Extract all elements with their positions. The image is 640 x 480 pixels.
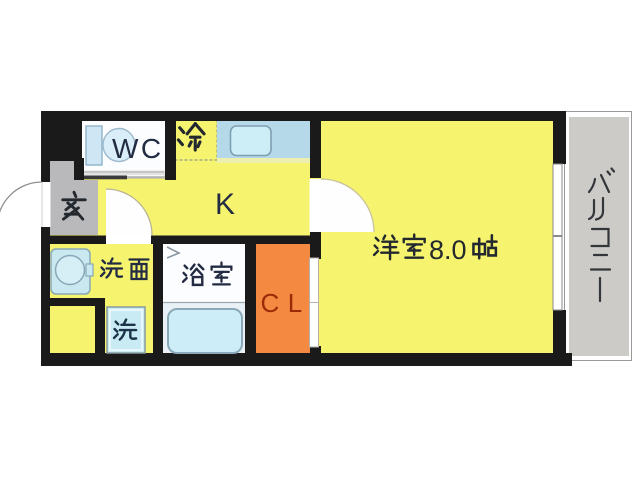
svg-text:K: K	[215, 188, 235, 221]
svg-text:8.0: 8.0	[429, 235, 467, 265]
svg-text:WC: WC	[112, 133, 164, 164]
svg-text:CL: CL	[261, 288, 311, 318]
